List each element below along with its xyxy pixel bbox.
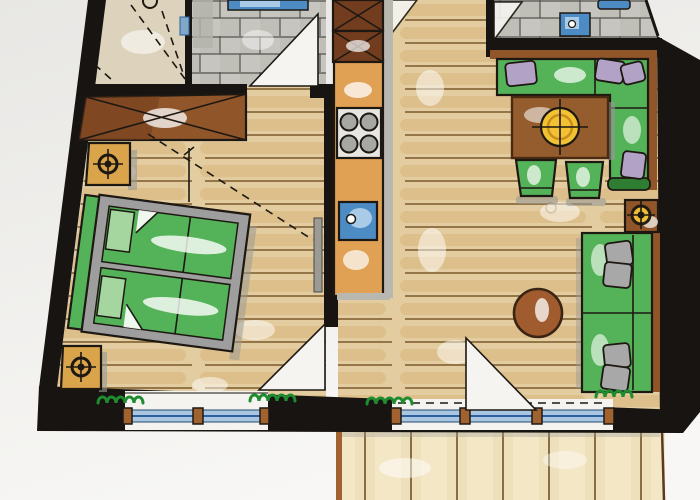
terrace-deck [336,422,665,500]
bed-pillow [105,209,134,252]
bench-pillow [620,151,646,180]
counter-edge [383,0,393,298]
bench-backrest-right [648,50,657,190]
bedroom-heater [314,218,322,292]
floor-plan-canvas [0,0,700,500]
stove [337,108,381,158]
door-post [391,408,401,424]
wardrobe [79,94,246,140]
burner-circle-icon [361,136,378,153]
floor-plan-drawing [0,0,700,500]
sofa-pillow [600,364,630,392]
bath-vanity [193,0,213,48]
bench-pillow [505,60,537,86]
nightstand-bottom [61,346,107,392]
window-post [123,408,132,424]
nightstand-top [86,143,137,190]
bed-pillow [97,276,126,319]
kitchen-sink [339,202,377,240]
sofa-pillow [603,262,632,289]
wall-right-outer [657,36,700,433]
bench-backrest-top [490,50,657,59]
bathtub-highlight [240,1,280,7]
pouf [514,289,562,337]
faucet-dot-icon [347,215,356,224]
terrace-left-edge [336,422,342,500]
window-post [193,408,203,424]
tall-cabinet [333,0,383,31]
burner-circle-icon [341,114,358,131]
faucet-dot-icon [569,21,576,28]
bench-pillow [620,61,646,86]
toilet [598,0,630,9]
bedroom-window [123,391,269,430]
kitchenette [333,0,393,300]
wall-wc-west [486,0,494,44]
burner-circle-icon [361,114,378,131]
door-post [604,408,614,424]
bench-armrest [608,178,650,190]
tall-cabinet [333,31,383,62]
radiator [180,17,189,35]
window-post [260,408,269,424]
wall-hall-bath [185,0,192,88]
burner-circle-icon [341,136,358,153]
counter-end [337,293,390,300]
